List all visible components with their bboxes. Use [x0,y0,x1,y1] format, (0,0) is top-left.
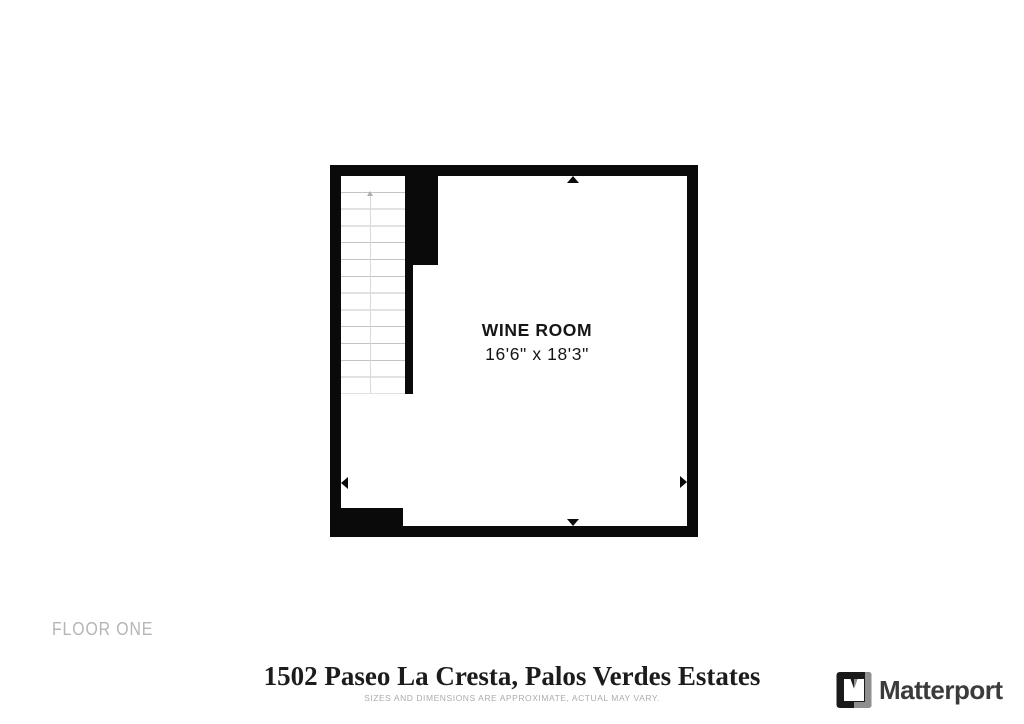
wall-top [330,165,698,176]
brand-wordmark: Matterport [879,675,1003,706]
wall-arrow-right-icon [680,476,687,488]
wall-right [687,165,698,537]
floor-label: FLOOR ONE [52,619,153,640]
stair-side-wall [405,265,413,394]
lower-left-wall-block [330,508,403,532]
stair-centerline [370,192,371,393]
stair-wall-block [405,176,438,265]
floor-plan-page: WINE ROOM 16'6" x 18'3" FLOOR ONE 1502 P… [0,0,1024,724]
matterport-logo-icon [836,671,872,709]
floor-plan: WINE ROOM 16'6" x 18'3" [330,165,698,537]
wall-arrow-up-icon [567,176,579,183]
wall-arrow-down-icon [567,519,579,526]
brand-logo: Matterport [836,671,1003,709]
staircase [341,176,405,394]
room-dimensions: 16'6" x 18'3" [427,345,647,363]
room-name: WINE ROOM [427,321,647,339]
wall-arrow-left-icon [341,477,348,489]
stair-direction-arrow-icon [367,191,373,196]
room-label-block: WINE ROOM 16'6" x 18'3" [427,321,647,363]
wall-left [330,165,341,537]
